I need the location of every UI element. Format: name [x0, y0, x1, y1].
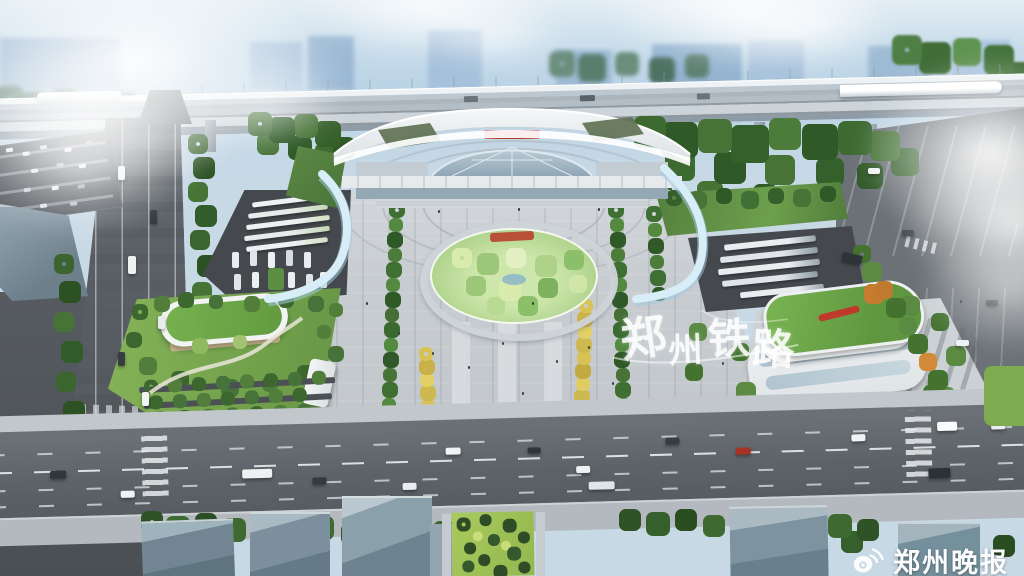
- vehicle-bus: [589, 481, 615, 490]
- cloud: [420, 5, 570, 70]
- flowerbed-walk-left: [442, 514, 451, 576]
- vehicle: [446, 447, 461, 454]
- vehicle: [402, 483, 416, 490]
- press-label: 郑州晚报: [893, 541, 1009, 576]
- vehicle: [851, 434, 865, 441]
- flowerbed-walk-right: [536, 512, 545, 576]
- vehicle: [121, 491, 135, 498]
- vehicle-on-left-road: [142, 392, 149, 406]
- office-building: [250, 512, 330, 576]
- vehicle: [312, 477, 326, 484]
- vehicle-van: [937, 422, 957, 432]
- vehicle-on-left-road: [158, 316, 165, 329]
- crosswalk-east: [905, 410, 933, 477]
- office-building-glass: [342, 496, 432, 576]
- watermark-flourish: [611, 293, 804, 384]
- vehicle: [50, 470, 66, 478]
- weibo-eye-icon: [850, 546, 884, 576]
- vehicle-truck: [928, 468, 950, 479]
- flower-swirl-pattern: [462, 522, 466, 526]
- vehicle: [242, 469, 272, 479]
- rendering-scene: 郑 州 铁 路 郑州晚报: [0, 0, 1024, 576]
- vehicle: [528, 447, 541, 453]
- lawn-patch-right-edge: [984, 366, 1024, 426]
- vehicle: [665, 437, 679, 444]
- watermark-zhengzhou-railway: 郑 州 铁 路: [611, 293, 804, 384]
- vehicle-truck-left-road: [128, 256, 136, 274]
- vehicle: [576, 466, 590, 473]
- office-building: [141, 518, 235, 576]
- cloud: [180, 55, 350, 150]
- vehicle-on-left-road: [118, 352, 125, 366]
- vehicle-red: [736, 447, 751, 454]
- flower-bed-median: [451, 511, 534, 576]
- press-logo: 郑州晚报: [850, 541, 1009, 576]
- crosswalk-west: [141, 434, 169, 497]
- office-building: [729, 505, 828, 576]
